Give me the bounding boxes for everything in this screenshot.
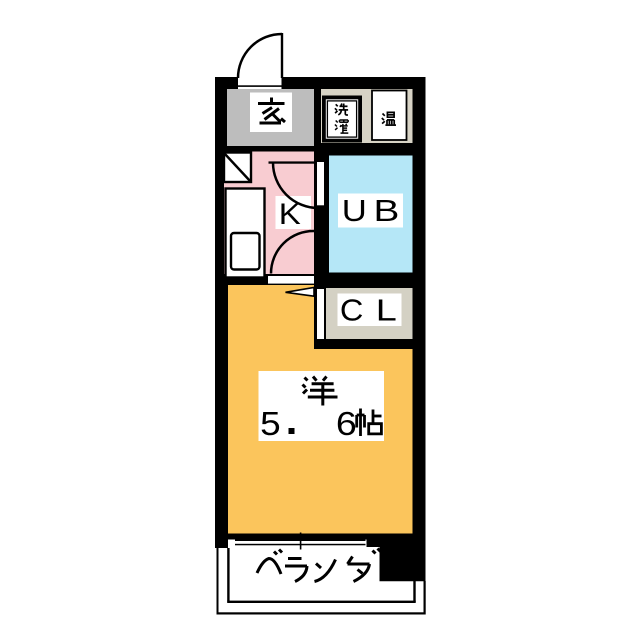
svg-text:C: C <box>340 292 364 327</box>
svg-text:6: 6 <box>336 406 357 442</box>
svg-text:5: 5 <box>260 406 281 443</box>
svg-text:L: L <box>376 294 397 328</box>
svg-text:K: K <box>279 196 301 230</box>
svg-text:U: U <box>342 193 367 228</box>
svg-text:B: B <box>374 194 400 228</box>
